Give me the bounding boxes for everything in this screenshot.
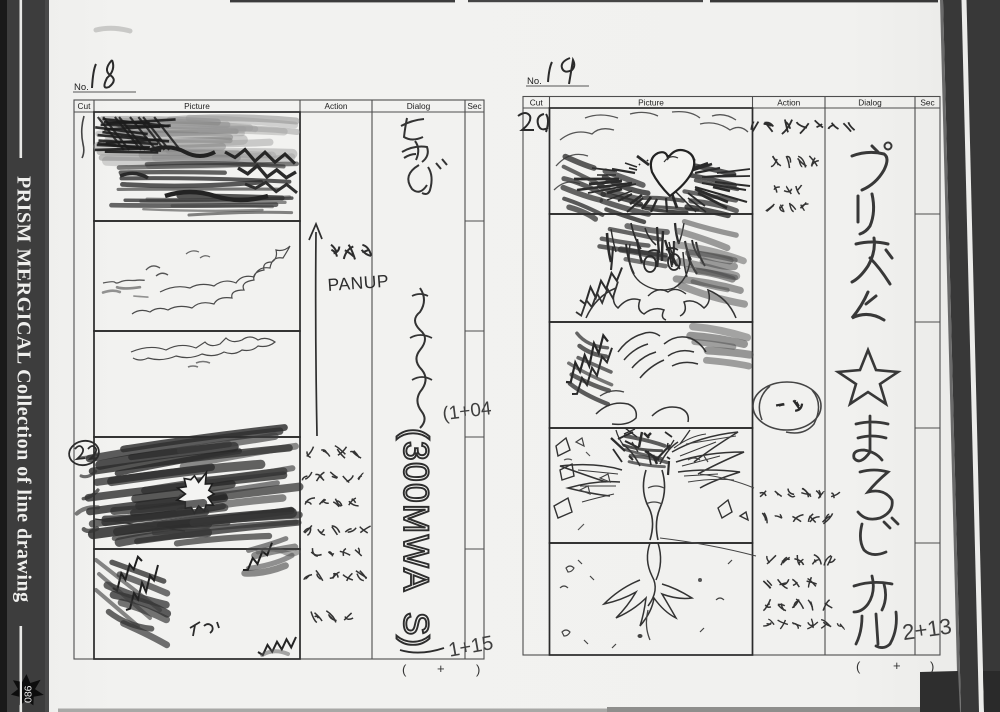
svg-text:(: ( — [856, 659, 861, 674]
svg-text:(: ( — [402, 662, 420, 677]
svg-text:PRISM MERGICAL Collection of l: PRISM MERGICAL Collection of line drawin… — [13, 176, 35, 603]
svg-text:PANUP: PANUP — [327, 271, 390, 295]
svg-text:Dialog: Dialog — [407, 101, 431, 111]
svg-text:+: + — [893, 658, 901, 673]
svg-text:Cut: Cut — [78, 101, 92, 111]
svg-text:Dialog: Dialog — [858, 98, 882, 108]
svg-text:S): S) — [396, 612, 435, 647]
svg-text:Action: Action — [777, 98, 800, 108]
svg-text:(300MWA: (300MWA — [396, 428, 435, 593]
svg-text:Sec: Sec — [467, 101, 481, 111]
svg-text:): ) — [930, 659, 934, 674]
svg-text:Picture: Picture — [638, 98, 664, 108]
svg-text:): ) — [476, 662, 480, 677]
svg-text:Picture: Picture — [184, 101, 210, 111]
svg-text:Cut: Cut — [530, 98, 544, 108]
svg-text:086: 086 — [23, 685, 35, 703]
svg-text:Sec: Sec — [920, 98, 934, 108]
svg-text:Action: Action — [324, 101, 347, 111]
svg-text:No.: No. — [527, 76, 542, 87]
svg-text:+: + — [437, 661, 445, 676]
svg-text:No.: No. — [74, 82, 89, 93]
